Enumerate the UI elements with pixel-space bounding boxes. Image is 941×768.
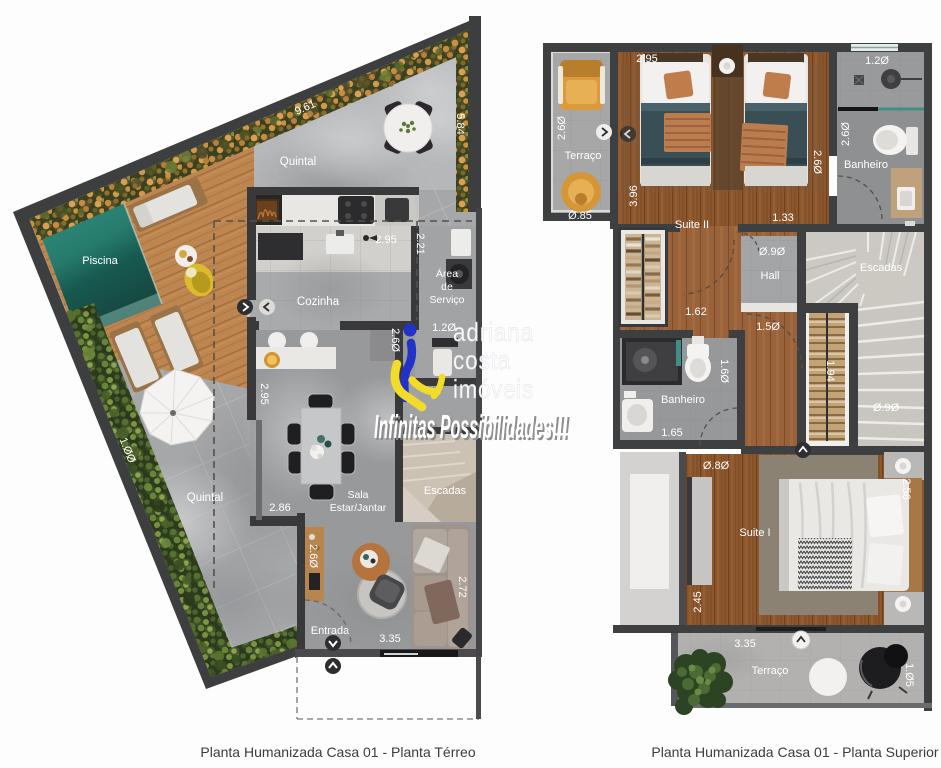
svg-text:2.72: 2.72 bbox=[456, 576, 468, 597]
svg-text:3.35: 3.35 bbox=[379, 633, 400, 645]
svg-text:adriana: adriana bbox=[453, 317, 534, 347]
svg-text:1.2Ø: 1.2Ø bbox=[865, 55, 889, 67]
svg-text:Suite II: Suite II bbox=[675, 219, 709, 231]
svg-text:1.65: 1.65 bbox=[661, 427, 682, 439]
svg-text:Ø.9Ø: Ø.9Ø bbox=[873, 402, 900, 414]
svg-text:3.96: 3.96 bbox=[628, 185, 640, 206]
svg-text:Hall: Hall bbox=[761, 270, 780, 282]
svg-text:Serviço: Serviço bbox=[429, 294, 464, 306]
svg-text:Piscina: Piscina bbox=[82, 255, 118, 267]
svg-text:Quintal: Quintal bbox=[280, 156, 316, 168]
svg-text:2.6Ø: 2.6Ø bbox=[811, 150, 823, 174]
svg-text:Escadas: Escadas bbox=[424, 485, 467, 497]
svg-text:2.56: 2.56 bbox=[900, 478, 912, 499]
svg-text:Banheiro: Banheiro bbox=[661, 394, 705, 406]
svg-text:de: de bbox=[441, 281, 453, 293]
svg-text:1.33: 1.33 bbox=[772, 212, 793, 224]
svg-text:1.62: 1.62 bbox=[685, 306, 706, 318]
svg-text:Ø.85: Ø.85 bbox=[568, 210, 592, 222]
svg-text:Infinitas Possibilidades!!!: Infinitas Possibilidades!!! bbox=[374, 408, 568, 445]
svg-text:2.95: 2.95 bbox=[636, 53, 657, 65]
svg-text:2.45: 2.45 bbox=[692, 591, 704, 612]
svg-text:2.86: 2.86 bbox=[269, 502, 290, 514]
svg-text:Entrada: Entrada bbox=[311, 625, 350, 637]
svg-text:3.35: 3.35 bbox=[734, 638, 755, 650]
svg-text:2.6Ø: 2.6Ø bbox=[556, 116, 568, 140]
svg-text:2.6Ø: 2.6Ø bbox=[307, 544, 319, 568]
svg-text:Estar/Jantar: Estar/Jantar bbox=[330, 502, 387, 514]
svg-text:2.95: 2.95 bbox=[258, 383, 270, 404]
svg-text:1.5Ø: 1.5Ø bbox=[756, 321, 780, 333]
svg-text:Suite I: Suite I bbox=[739, 527, 770, 539]
svg-text:2.6Ø: 2.6Ø bbox=[840, 122, 852, 146]
svg-text:Planta Humanizada Casa 01 - Pl: Planta Humanizada Casa 01 - Planta Super… bbox=[651, 744, 939, 760]
svg-text:costa: costa bbox=[453, 345, 511, 375]
svg-text:Sala: Sala bbox=[347, 489, 368, 501]
svg-text:Cozinha: Cozinha bbox=[297, 296, 340, 308]
svg-text:2.6Ø: 2.6Ø bbox=[389, 328, 401, 352]
svg-text:Quintal: Quintal bbox=[187, 492, 223, 504]
svg-text:Ø.9Ø: Ø.9Ø bbox=[759, 246, 786, 258]
svg-text:5.84: 5.84 bbox=[454, 113, 466, 134]
svg-text:imóveis: imóveis bbox=[453, 374, 534, 404]
svg-text:Planta Humanizada Casa 01 - P: Planta Humanizada Casa 01 - Planta Térre… bbox=[200, 744, 475, 760]
svg-text:Área: Área bbox=[436, 267, 458, 280]
svg-text:2.95: 2.95 bbox=[375, 234, 396, 246]
svg-text:1.94: 1.94 bbox=[824, 360, 836, 381]
svg-text:2.21: 2.21 bbox=[414, 233, 426, 254]
svg-text:Escadas: Escadas bbox=[860, 262, 903, 274]
svg-text:1.6Ø: 1.6Ø bbox=[718, 359, 730, 383]
svg-text:Banheiro: Banheiro bbox=[844, 159, 888, 171]
svg-text:1.Ø5: 1.Ø5 bbox=[903, 663, 915, 687]
svg-text:Ø.8Ø: Ø.8Ø bbox=[703, 460, 730, 472]
svg-text:Terraço: Terraço bbox=[752, 665, 789, 677]
svg-text:Terraço: Terraço bbox=[565, 150, 602, 162]
